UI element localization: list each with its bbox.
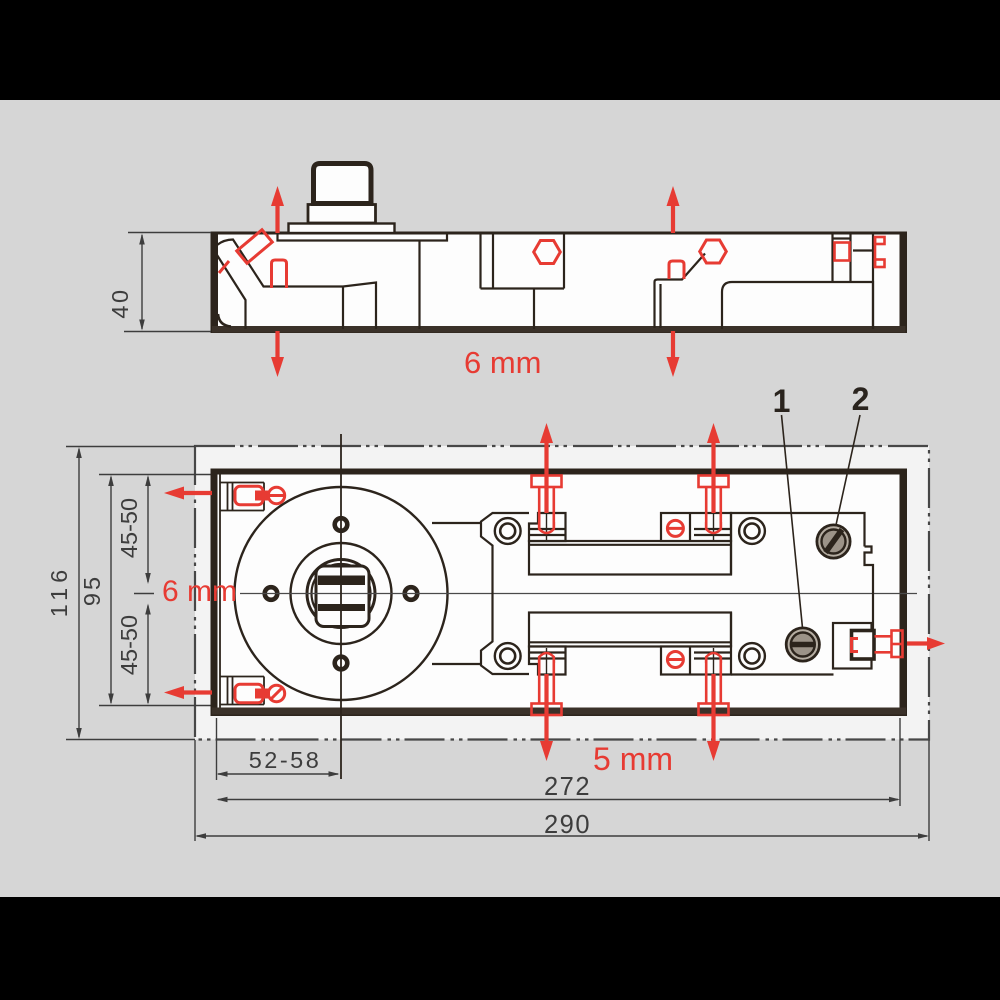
svg-text:45-50: 45-50 [116, 498, 142, 558]
svg-text:2: 2 [852, 381, 870, 417]
svg-text:272: 272 [544, 773, 591, 801]
svg-text:1: 1 [773, 383, 791, 419]
svg-text:6 mm: 6 mm [464, 345, 542, 380]
svg-text:116: 116 [46, 565, 72, 617]
svg-text:52-58: 52-58 [249, 747, 322, 773]
svg-text:95: 95 [79, 574, 105, 606]
svg-text:45-50: 45-50 [116, 615, 142, 675]
svg-text:290: 290 [544, 811, 591, 839]
svg-text:6 mm: 6 mm [162, 575, 237, 608]
svg-text:5 mm: 5 mm [593, 741, 673, 777]
svg-text:40: 40 [107, 287, 133, 318]
